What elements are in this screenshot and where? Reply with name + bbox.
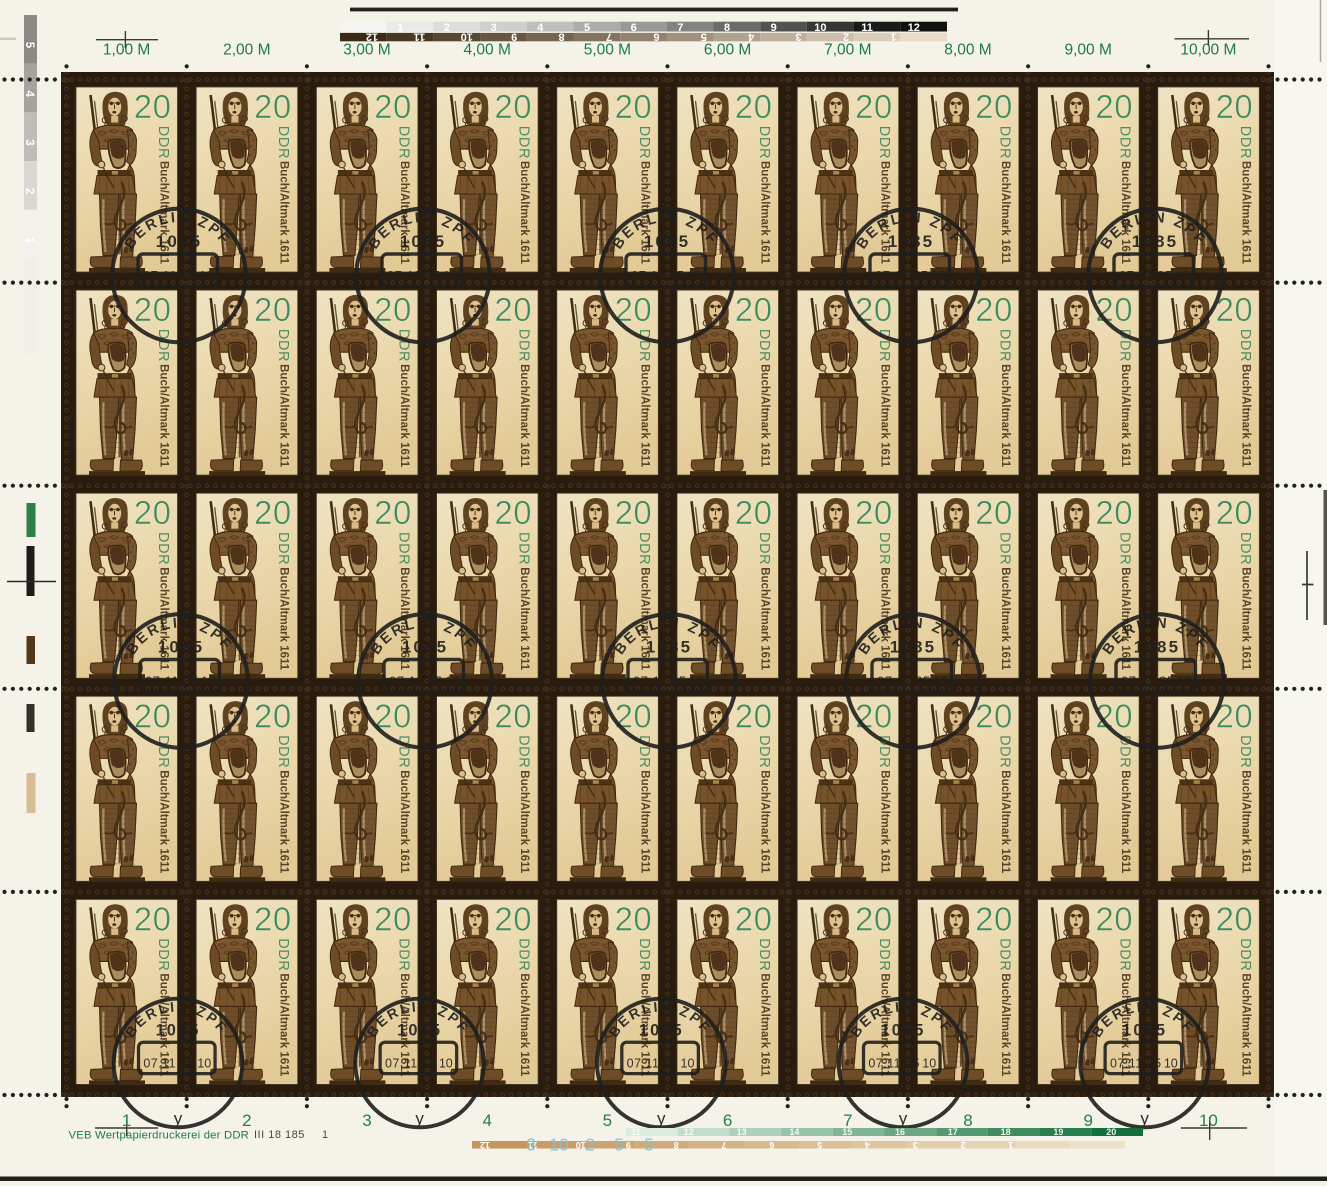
svg-text:3: 3 bbox=[362, 1111, 371, 1130]
svg-text:3,00 M: 3,00 M bbox=[343, 42, 390, 59]
svg-text:8: 8 bbox=[559, 30, 565, 42]
svg-text:1: 1 bbox=[322, 1129, 328, 1141]
svg-text:3: 3 bbox=[796, 30, 802, 42]
svg-text:4,00 M: 4,00 M bbox=[464, 42, 511, 59]
svg-text:5: 5 bbox=[644, 1135, 654, 1155]
svg-text:7,00 M: 7,00 M bbox=[824, 42, 871, 59]
svg-text:7: 7 bbox=[677, 22, 683, 34]
svg-text:17: 17 bbox=[948, 1127, 958, 1137]
svg-text:9: 9 bbox=[511, 30, 517, 42]
svg-text:y: y bbox=[174, 1109, 183, 1128]
svg-text:VEB Wertpapierdruckerei der DD: VEB Wertpapierdruckerei der DDR bbox=[69, 1130, 250, 1142]
svg-text:9: 9 bbox=[771, 22, 777, 34]
svg-text:1: 1 bbox=[1008, 1140, 1013, 1150]
svg-text:11: 11 bbox=[414, 30, 426, 42]
svg-text:6: 6 bbox=[769, 1140, 774, 1150]
svg-text:y: y bbox=[657, 1109, 666, 1128]
svg-text:14: 14 bbox=[789, 1127, 799, 1137]
svg-text:20: 20 bbox=[1106, 1127, 1116, 1137]
svg-text:16: 16 bbox=[895, 1127, 905, 1137]
svg-text:1: 1 bbox=[23, 237, 35, 244]
svg-text:7: 7 bbox=[721, 1140, 726, 1150]
svg-text:9: 9 bbox=[626, 1140, 631, 1150]
svg-text:4: 4 bbox=[23, 90, 35, 97]
svg-text:8,00 M: 8,00 M bbox=[944, 42, 991, 59]
svg-text:9,00 M: 9,00 M bbox=[1065, 42, 1112, 59]
svg-text:III 18 185: III 18 185 bbox=[254, 1129, 305, 1141]
svg-text:3: 3 bbox=[491, 22, 497, 34]
svg-text:5: 5 bbox=[817, 1140, 822, 1150]
svg-text:y: y bbox=[1140, 1109, 1149, 1128]
svg-text:2: 2 bbox=[23, 188, 35, 194]
svg-text:10: 10 bbox=[814, 22, 826, 34]
svg-text:5: 5 bbox=[603, 1111, 612, 1130]
svg-text:2: 2 bbox=[960, 1140, 965, 1150]
svg-text:9: 9 bbox=[1083, 1111, 1092, 1130]
svg-text:y: y bbox=[415, 1109, 424, 1128]
svg-text:1: 1 bbox=[122, 1111, 131, 1130]
svg-text:1: 1 bbox=[890, 30, 896, 42]
svg-text:2: 2 bbox=[444, 22, 450, 34]
svg-text:4: 4 bbox=[865, 1140, 870, 1150]
svg-text:8: 8 bbox=[963, 1111, 972, 1130]
svg-text:1: 1 bbox=[397, 22, 403, 34]
svg-text:2: 2 bbox=[242, 1111, 251, 1130]
svg-text:12: 12 bbox=[480, 1140, 490, 1150]
svg-text:4: 4 bbox=[537, 22, 544, 34]
svg-text:10: 10 bbox=[1199, 1111, 1218, 1130]
svg-text:5: 5 bbox=[584, 22, 590, 34]
svg-text:12: 12 bbox=[684, 1127, 694, 1137]
svg-text:11: 11 bbox=[861, 22, 873, 34]
svg-text:12: 12 bbox=[908, 22, 920, 34]
svg-text:8: 8 bbox=[674, 1140, 679, 1150]
svg-text:8: 8 bbox=[724, 22, 730, 34]
svg-text:6,00 M: 6,00 M bbox=[704, 42, 751, 59]
svg-text:6: 6 bbox=[631, 22, 637, 34]
svg-text:3: 3 bbox=[913, 1140, 918, 1150]
svg-text:5,00 M: 5,00 M bbox=[584, 42, 631, 59]
svg-text:6: 6 bbox=[723, 1111, 732, 1130]
svg-text:5: 5 bbox=[23, 42, 35, 49]
svg-text:1,00 M: 1,00 M bbox=[103, 42, 150, 59]
svg-text:y: y bbox=[899, 1109, 908, 1128]
svg-text:3: 3 bbox=[23, 139, 35, 145]
svg-text:6: 6 bbox=[653, 30, 659, 42]
svg-text:10: 10 bbox=[549, 1135, 569, 1155]
svg-text:10: 10 bbox=[576, 1140, 586, 1150]
svg-text:2,00 M: 2,00 M bbox=[223, 42, 270, 59]
svg-text:3: 3 bbox=[526, 1135, 536, 1155]
svg-text:18: 18 bbox=[1001, 1127, 1011, 1137]
svg-text:11: 11 bbox=[631, 1127, 641, 1137]
svg-text:19: 19 bbox=[1053, 1127, 1063, 1137]
svg-text:4: 4 bbox=[482, 1111, 491, 1130]
svg-text:5: 5 bbox=[614, 1135, 624, 1155]
svg-text:13: 13 bbox=[737, 1127, 747, 1137]
svg-text:2: 2 bbox=[585, 1135, 595, 1155]
svg-text:15: 15 bbox=[842, 1127, 852, 1137]
